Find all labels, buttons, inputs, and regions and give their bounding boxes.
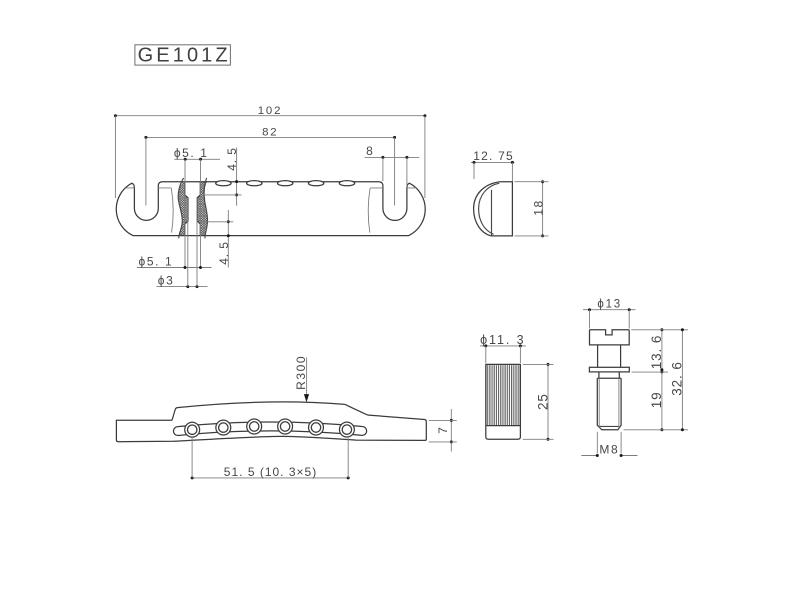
svg-text:102: 102	[258, 105, 282, 117]
svg-text:ϕ5. 1: ϕ5. 1	[174, 146, 209, 160]
svg-text:13. 6: 13. 6	[649, 335, 664, 370]
svg-text:51. 5 (10. 3×5): 51. 5 (10. 3×5)	[224, 465, 317, 479]
svg-text:ϕ3: ϕ3	[158, 274, 175, 288]
svg-text:ϕ5. 1: ϕ5. 1	[139, 255, 174, 269]
svg-text:25: 25	[536, 393, 551, 410]
svg-text:ϕ13: ϕ13	[597, 299, 622, 311]
svg-text:19: 19	[649, 391, 664, 408]
svg-text:ϕ11. 3: ϕ11. 3	[480, 333, 525, 347]
svg-text:M8: M8	[599, 443, 619, 457]
svg-text:18: 18	[531, 199, 545, 216]
svg-text:82: 82	[262, 127, 278, 139]
svg-text:7: 7	[436, 426, 450, 434]
svg-text:4. 5: 4. 5	[217, 241, 231, 265]
svg-text:32. 6: 32. 6	[669, 361, 684, 396]
svg-text:12. 75: 12. 75	[473, 149, 514, 163]
svg-text:GE101Z: GE101Z	[138, 44, 231, 66]
svg-text:4. 5: 4. 5	[225, 147, 239, 171]
svg-text:R300: R300	[294, 355, 308, 390]
svg-text:8: 8	[366, 144, 374, 158]
